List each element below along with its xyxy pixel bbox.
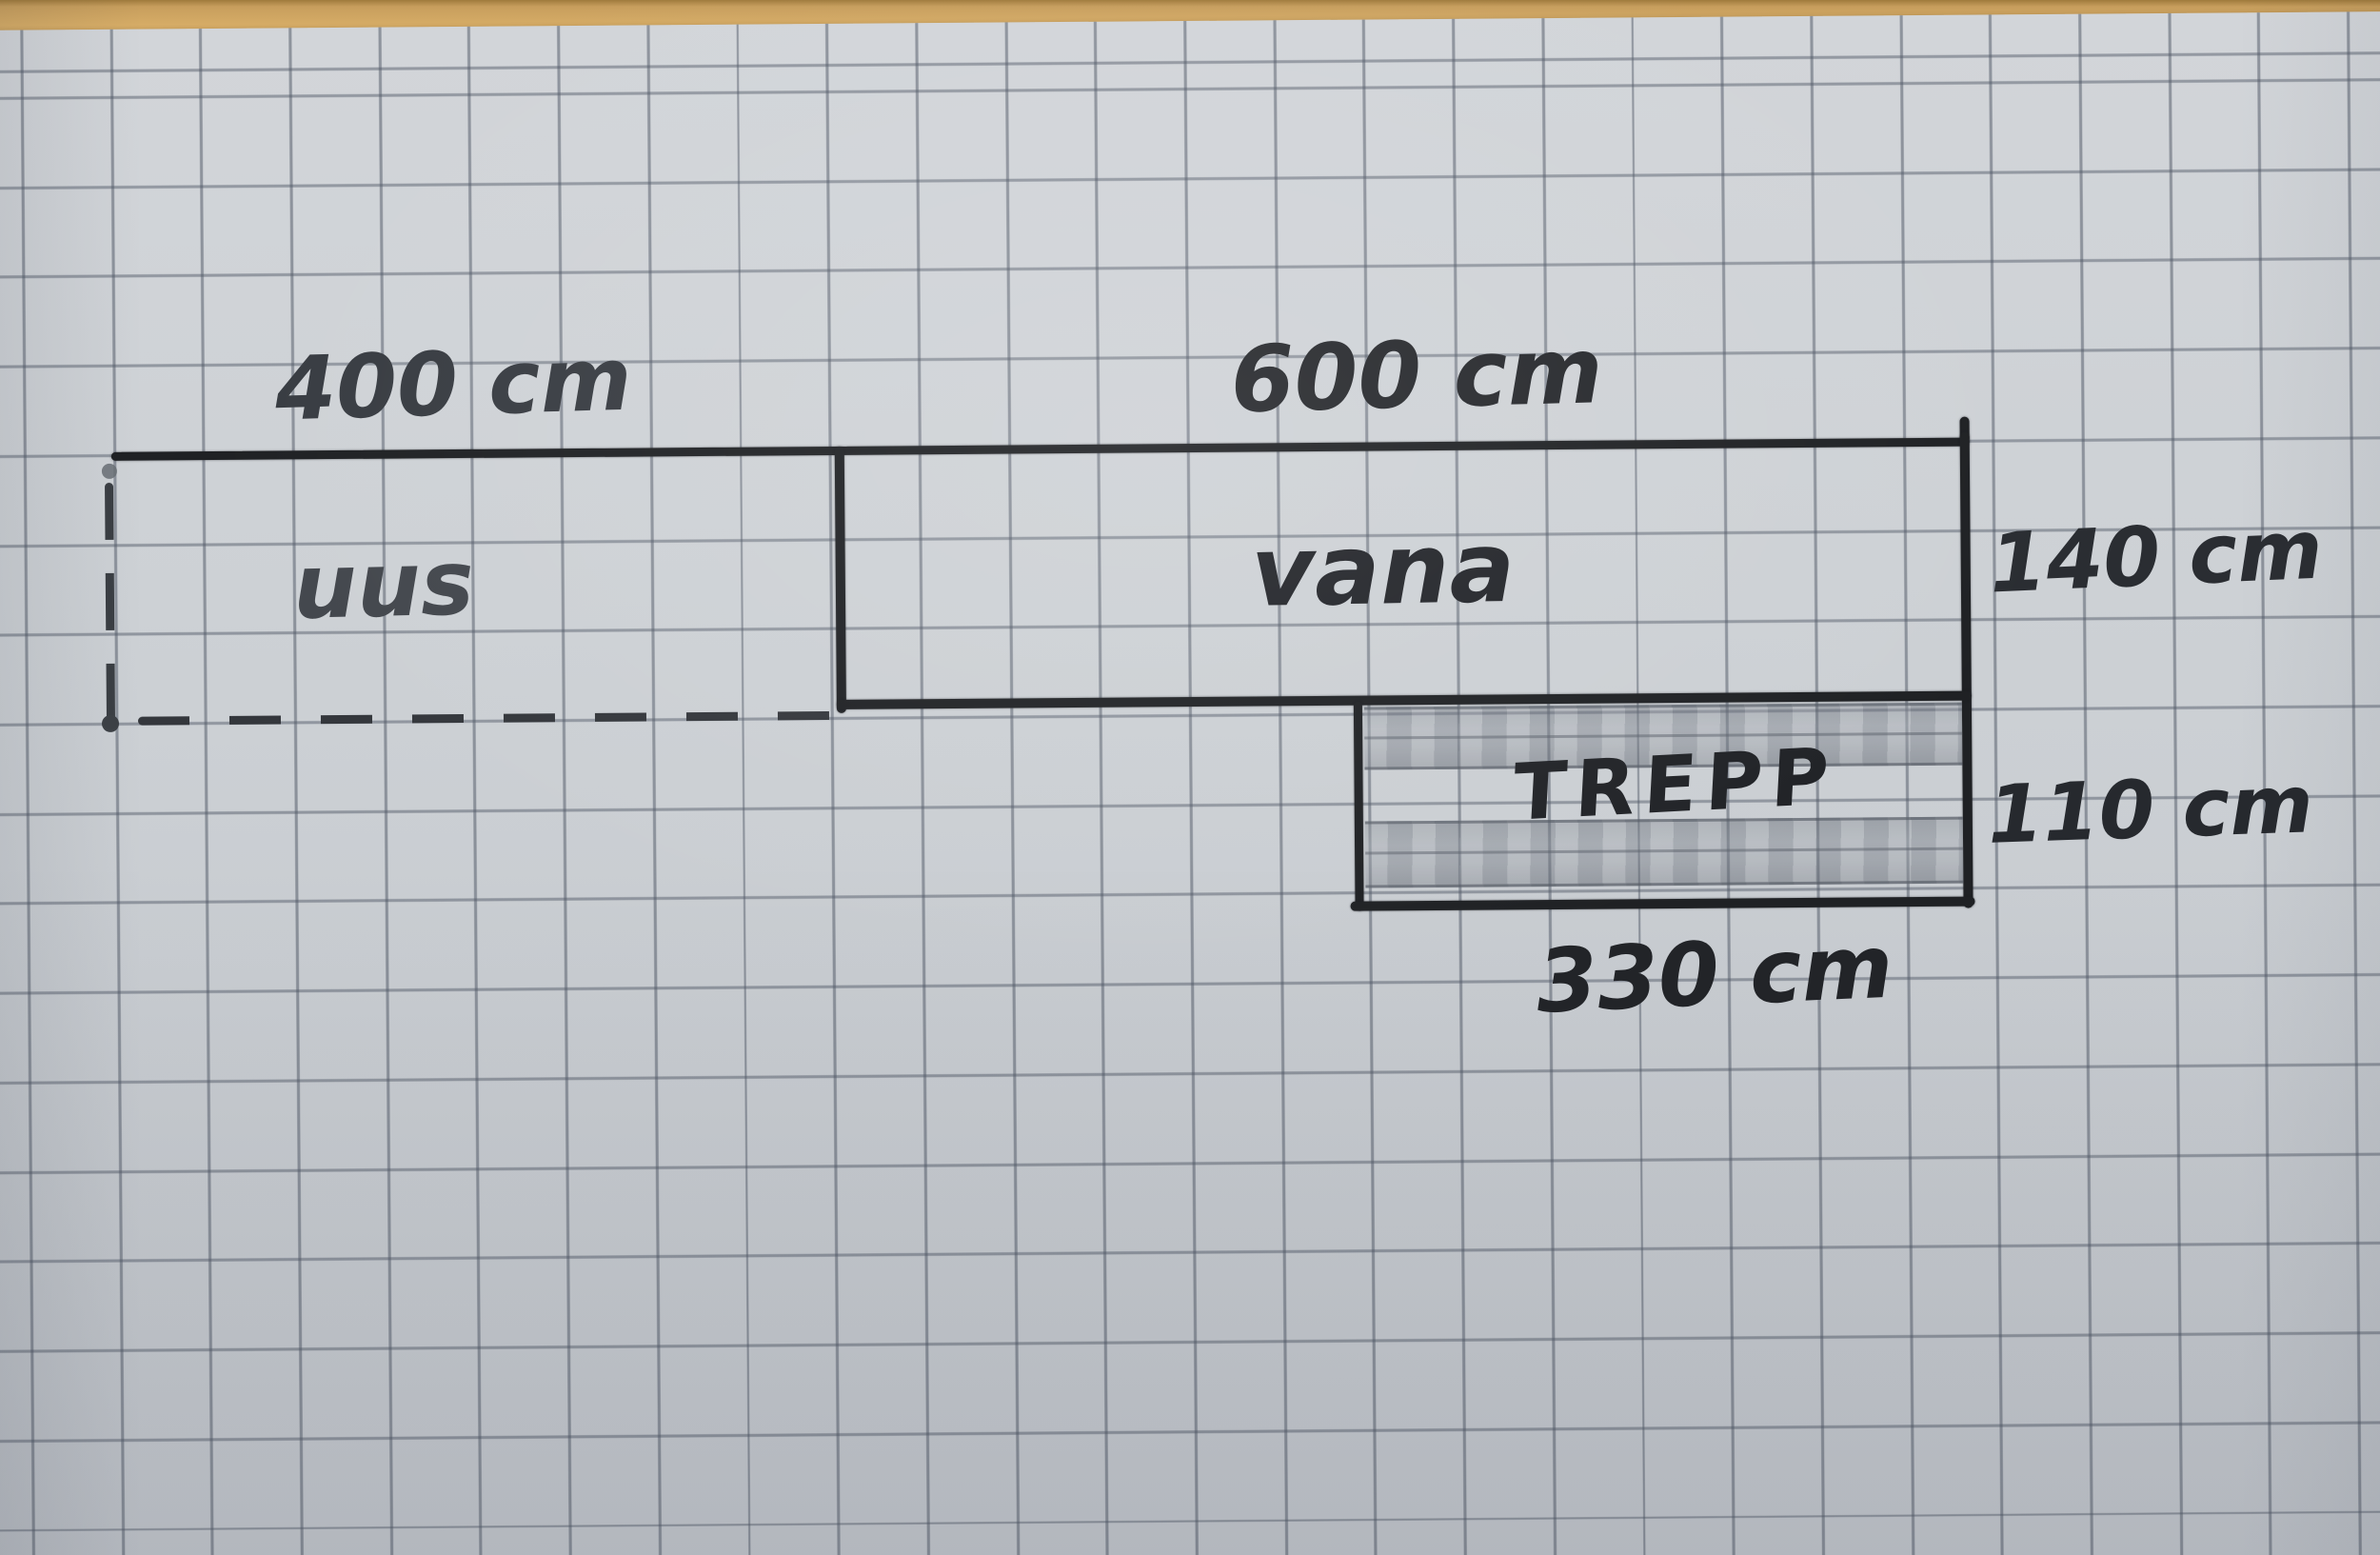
- plan-top-edge-line: [111, 438, 1970, 461]
- trepp-bottom-edge-line: [1351, 897, 1975, 911]
- trepp-left-edge-line: [1354, 702, 1364, 911]
- pencil-step-line: [1365, 847, 1963, 855]
- dimension-label-trepp-width: 330 cm: [1513, 923, 1916, 1027]
- dimension-label-vana-width: 600 cm: [1178, 324, 1656, 428]
- uus-top-left-endpoint-dot: [102, 464, 117, 479]
- uus-bottom-left-endpoint-dot: [102, 715, 119, 732]
- vana-left-edge-line: [835, 447, 846, 713]
- uus-left-dashed-line: [105, 483, 115, 732]
- vana-region-label: vana: [1197, 519, 1570, 623]
- uus-region-label: uus: [235, 538, 532, 635]
- uus-bottom-dashed-line: [138, 711, 839, 726]
- photo-of-sketch: 400 cm 600 cm uus vana 140 cm TREPP 110 …: [0, 0, 2380, 1555]
- dimension-label-trepp-height: 110 cm: [1986, 764, 2314, 855]
- dimension-label-uus-width: 400 cm: [224, 334, 683, 435]
- graph-paper: 400 cm 600 cm uus vana 140 cm TREPP 110 …: [0, 11, 2380, 1555]
- dimension-label-vana-height: 140 cm: [1988, 509, 2324, 606]
